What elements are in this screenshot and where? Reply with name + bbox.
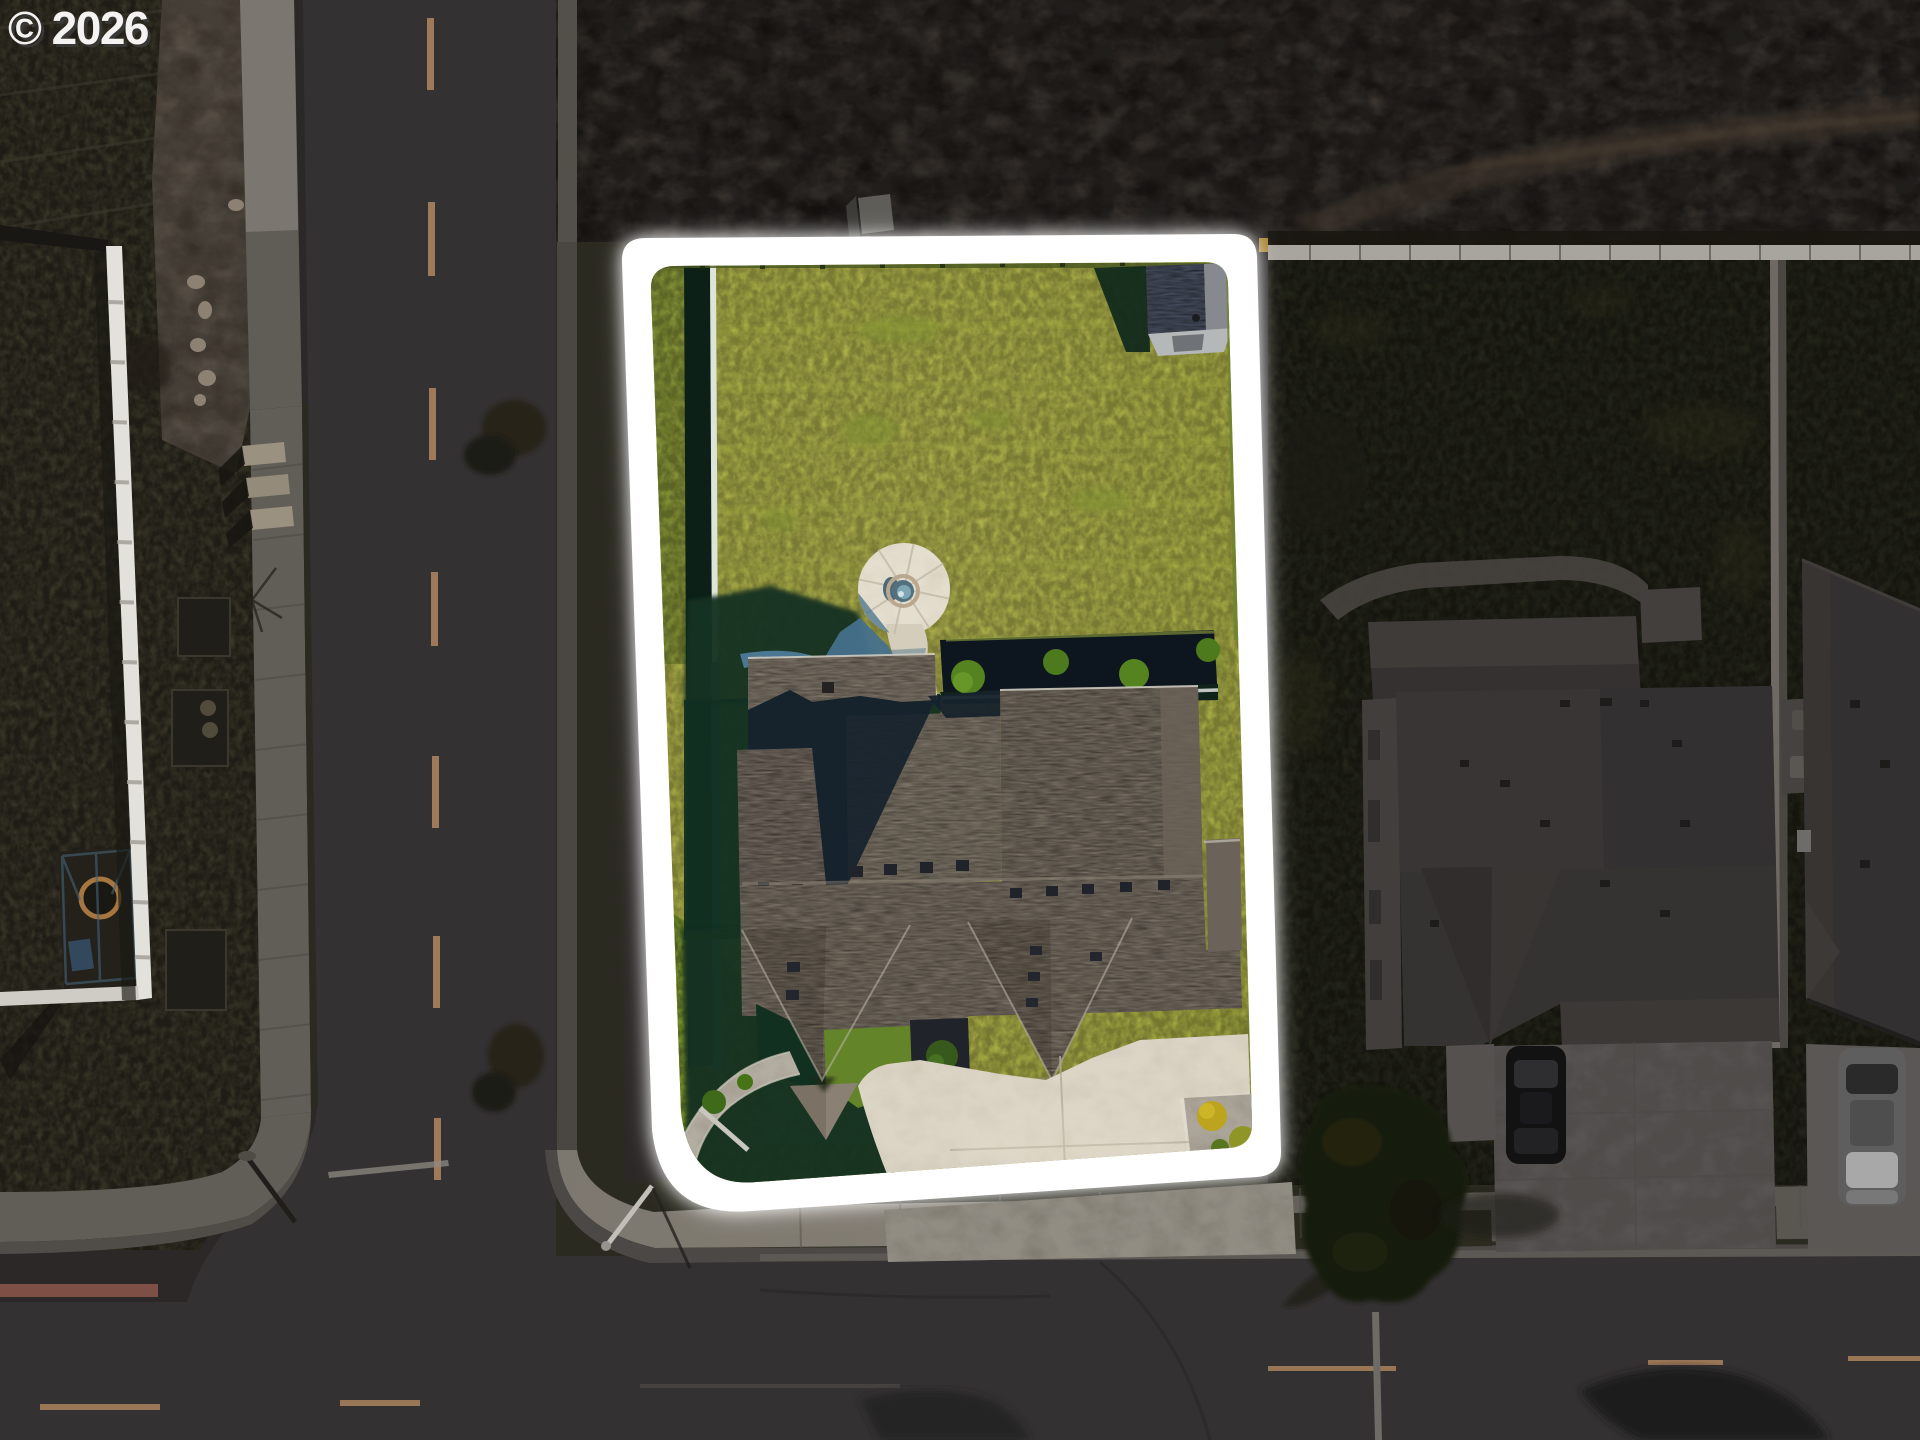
svg-text:© 2026: © 2026: [8, 2, 148, 54]
